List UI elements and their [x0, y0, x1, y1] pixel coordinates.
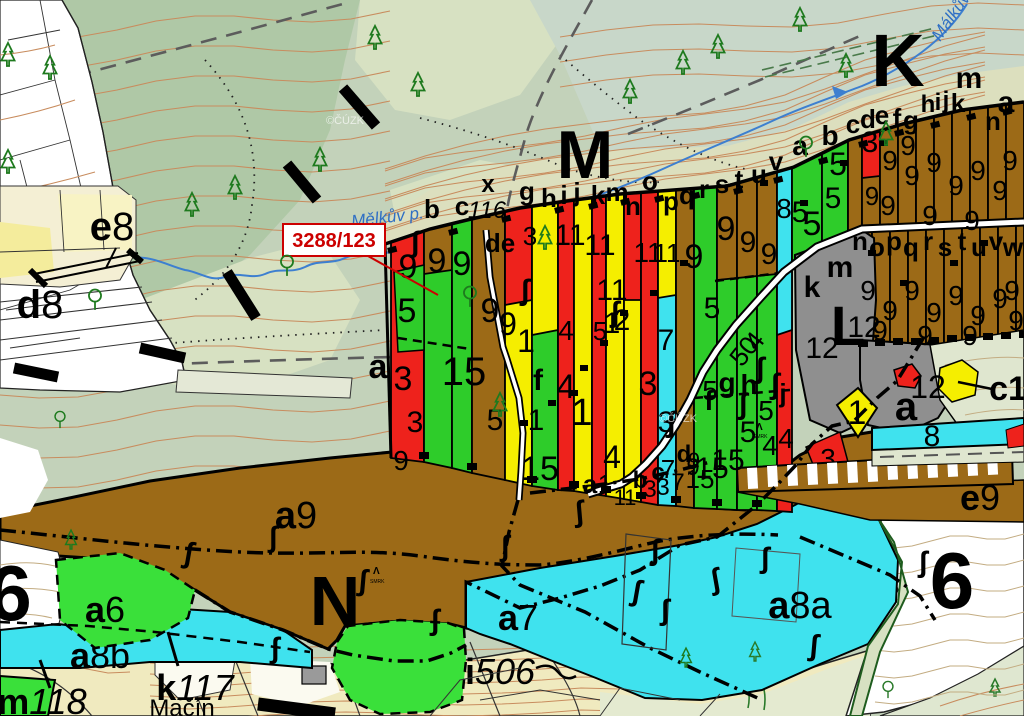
svg-text:x: x	[481, 171, 495, 198]
svg-text:2: 2	[614, 304, 631, 337]
svg-text:Mačín: Mačín	[149, 695, 214, 716]
svg-text:t: t	[958, 226, 967, 256]
svg-text:g: g	[718, 367, 735, 398]
svg-text:5: 5	[829, 146, 847, 182]
svg-text:3: 3	[523, 221, 537, 251]
svg-text:q: q	[903, 232, 919, 262]
svg-text:9: 9	[948, 170, 964, 201]
svg-text:3: 3	[394, 360, 413, 398]
svg-text:9: 9	[428, 242, 447, 280]
svg-text:K: K	[871, 19, 924, 102]
svg-text:r: r	[699, 174, 709, 204]
svg-text:7: 7	[671, 469, 684, 496]
svg-text:9: 9	[1008, 305, 1024, 336]
svg-text:3: 3	[639, 365, 658, 403]
svg-text:r: r	[923, 226, 933, 256]
svg-text:9: 9	[880, 190, 896, 221]
svg-text:j: j	[942, 87, 950, 114]
svg-text:f: f	[704, 385, 714, 416]
svg-text:12: 12	[805, 332, 838, 365]
svg-text:p: p	[663, 186, 679, 216]
svg-text:j: j	[778, 378, 786, 408]
svg-text:9: 9	[685, 238, 704, 276]
svg-text:m: m	[956, 62, 983, 95]
svg-text:7: 7	[658, 324, 675, 357]
svg-text:5: 5	[398, 292, 417, 330]
svg-text:9: 9	[917, 320, 933, 351]
svg-text:w: w	[1002, 232, 1024, 262]
svg-text:8: 8	[776, 193, 792, 224]
svg-text:b: b	[424, 194, 440, 224]
svg-text:a9: a9	[275, 495, 317, 537]
svg-text:5: 5	[803, 205, 822, 243]
svg-text:f: f	[893, 103, 902, 133]
svg-text:8: 8	[924, 420, 941, 453]
svg-text:t: t	[735, 164, 744, 194]
svg-text:o: o	[869, 232, 885, 262]
svg-text:9: 9	[1002, 145, 1018, 176]
svg-text:9: 9	[1004, 275, 1020, 306]
svg-text:SMRK: SMRK	[370, 579, 385, 585]
svg-text:4: 4	[558, 315, 574, 346]
svg-text:Λ: Λ	[756, 422, 763, 433]
svg-text:d: d	[860, 104, 876, 134]
svg-text:q: q	[679, 180, 695, 210]
svg-text:b: b	[821, 120, 838, 151]
svg-text:©ČÚZK: ©ČÚZK	[659, 412, 698, 425]
svg-text:9: 9	[481, 292, 500, 330]
svg-text:3288/123: 3288/123	[292, 230, 375, 252]
svg-text:d8: d8	[17, 283, 64, 327]
svg-text:9: 9	[948, 280, 964, 311]
svg-text:c: c	[846, 109, 860, 139]
svg-text:de: de	[485, 228, 515, 258]
svg-text:a8a: a8a	[768, 585, 832, 627]
svg-text:p: p	[886, 226, 902, 256]
svg-text:m118: m118	[0, 681, 87, 716]
svg-text:1: 1	[517, 323, 535, 359]
svg-text:n: n	[852, 226, 868, 256]
svg-text:n: n	[985, 106, 1001, 136]
svg-text:g: g	[519, 176, 535, 206]
svg-text:h: h	[740, 369, 757, 400]
svg-text:11: 11	[614, 485, 637, 510]
svg-text:9: 9	[393, 445, 409, 476]
svg-text:o: o	[642, 166, 658, 196]
svg-text:11: 11	[596, 274, 627, 307]
svg-text:SMRK: SMRK	[753, 434, 768, 440]
svg-text:5: 5	[704, 292, 721, 325]
svg-text:9: 9	[900, 130, 916, 161]
svg-text:i: i	[935, 89, 942, 116]
svg-text:9: 9	[688, 448, 700, 473]
svg-text:3: 3	[407, 406, 424, 439]
svg-text:9: 9	[717, 210, 736, 248]
svg-text:M: M	[557, 117, 614, 193]
svg-text:3: 3	[656, 474, 669, 501]
svg-text:9: 9	[453, 245, 472, 283]
svg-text:12: 12	[847, 311, 880, 344]
svg-text:9: 9	[865, 181, 879, 211]
svg-text:15: 15	[442, 350, 487, 394]
svg-text:h: h	[541, 183, 557, 213]
svg-text:s: s	[715, 169, 729, 199]
svg-text:9: 9	[761, 238, 778, 271]
svg-text:9: 9	[970, 155, 986, 186]
svg-text:e8: e8	[90, 205, 135, 249]
svg-text:9: 9	[882, 145, 898, 176]
svg-text:9: 9	[904, 160, 920, 191]
svg-text:11: 11	[584, 229, 615, 262]
svg-text:k: k	[804, 271, 821, 304]
svg-text:a7: a7	[498, 597, 538, 638]
svg-text:a6: a6	[85, 589, 125, 630]
svg-text:3: 3	[643, 476, 656, 503]
svg-text:u: u	[971, 232, 987, 262]
svg-text:1: 1	[571, 392, 592, 434]
svg-text:v: v	[769, 146, 784, 176]
svg-text:9: 9	[399, 248, 418, 286]
svg-text:15: 15	[521, 450, 559, 488]
svg-text:11: 11	[654, 238, 681, 268]
svg-text:6: 6	[930, 536, 975, 625]
svg-text:f: f	[533, 364, 544, 397]
svg-text:©ČÚZK: ©ČÚZK	[326, 114, 365, 127]
svg-text:5: 5	[740, 416, 757, 449]
svg-text:v: v	[989, 226, 1004, 256]
svg-text:9: 9	[926, 147, 942, 178]
svg-text:9: 9	[962, 320, 978, 351]
svg-text:u: u	[751, 159, 767, 189]
svg-text:9: 9	[499, 306, 517, 342]
svg-text:12: 12	[910, 369, 946, 405]
svg-text:a: a	[583, 469, 598, 499]
svg-text:Λ: Λ	[373, 566, 380, 577]
svg-text:s: s	[938, 232, 952, 262]
svg-text:9: 9	[904, 275, 920, 306]
svg-text:e9: e9	[960, 477, 1000, 518]
svg-text:116: 116	[468, 197, 507, 224]
svg-text:n: n	[625, 191, 641, 221]
svg-text:9: 9	[992, 175, 1008, 206]
svg-text:a: a	[369, 348, 389, 386]
svg-text:1: 1	[528, 404, 545, 437]
svg-text:4: 4	[778, 423, 794, 454]
svg-text:11: 11	[554, 219, 585, 252]
svg-text:9: 9	[740, 226, 757, 259]
svg-text:1: 1	[598, 469, 612, 499]
svg-text:m: m	[827, 251, 854, 284]
svg-text:N: N	[310, 562, 361, 640]
svg-text:5: 5	[825, 182, 842, 215]
svg-text:c1: c1	[989, 370, 1024, 408]
